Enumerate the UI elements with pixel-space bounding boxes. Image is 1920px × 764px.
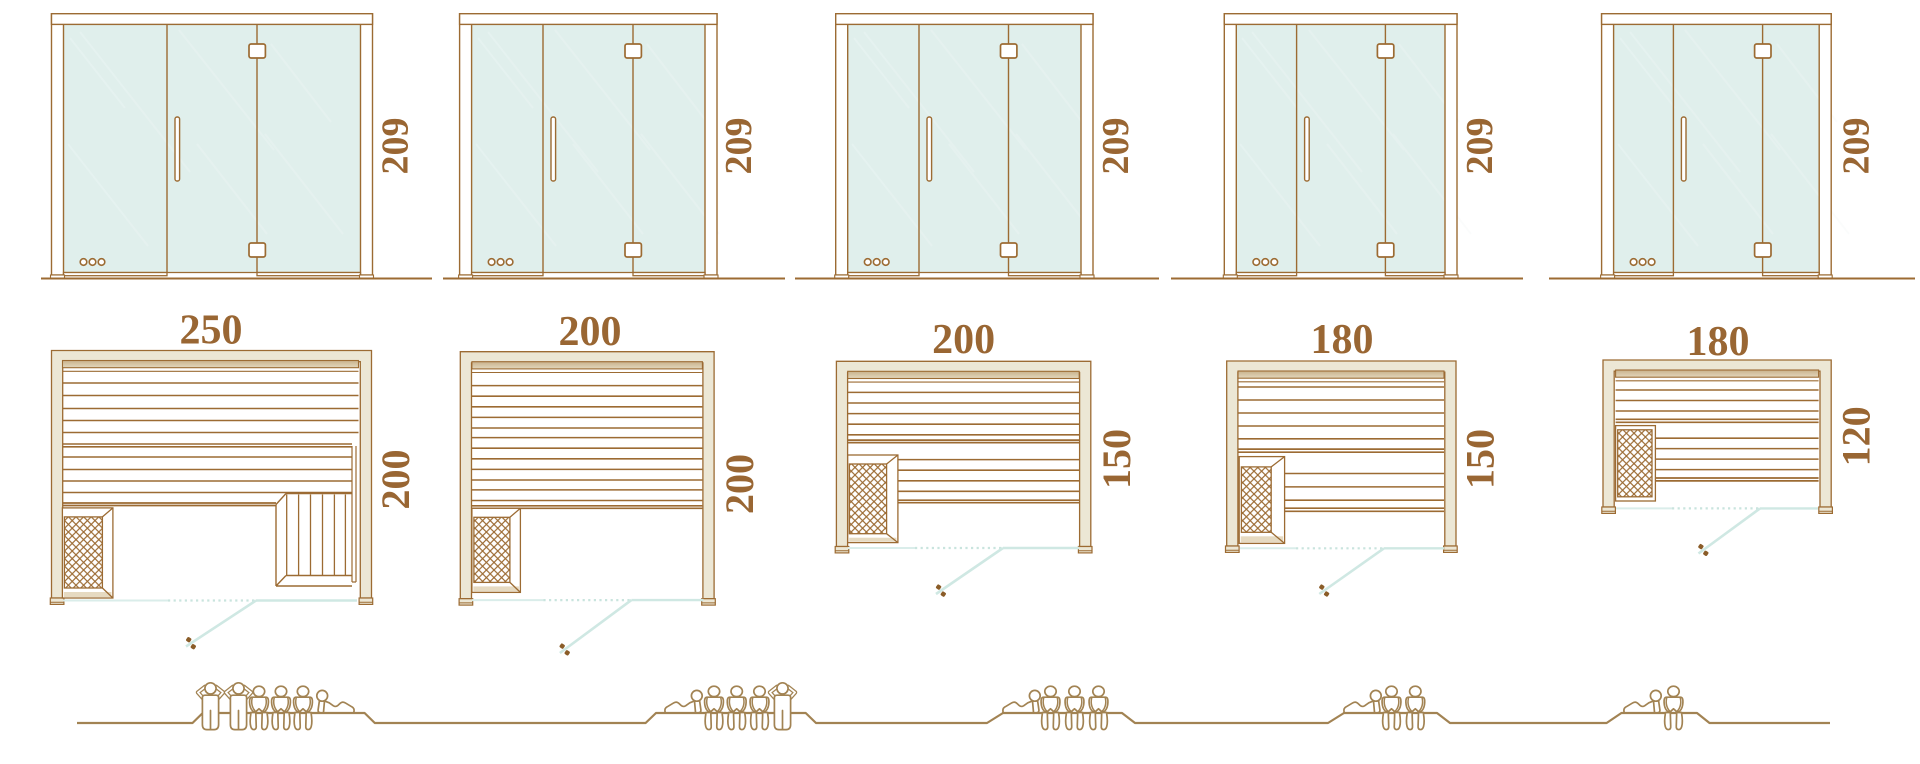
svg-text:200: 200	[932, 317, 995, 363]
svg-text:120: 120	[1834, 406, 1879, 466]
svg-text:209: 209	[1459, 118, 1501, 175]
svg-text:200: 200	[717, 454, 762, 514]
svg-text:250: 250	[180, 308, 243, 354]
svg-text:180: 180	[1311, 317, 1374, 363]
svg-text:150: 150	[1458, 429, 1503, 489]
svg-text:209: 209	[718, 118, 760, 175]
svg-text:209: 209	[1836, 118, 1878, 175]
svg-text:209: 209	[1095, 118, 1137, 175]
svg-text:180: 180	[1687, 319, 1750, 365]
svg-text:200: 200	[559, 309, 622, 355]
svg-text:150: 150	[1094, 429, 1139, 489]
svg-text:209: 209	[375, 118, 417, 175]
svg-text:200: 200	[373, 450, 418, 510]
